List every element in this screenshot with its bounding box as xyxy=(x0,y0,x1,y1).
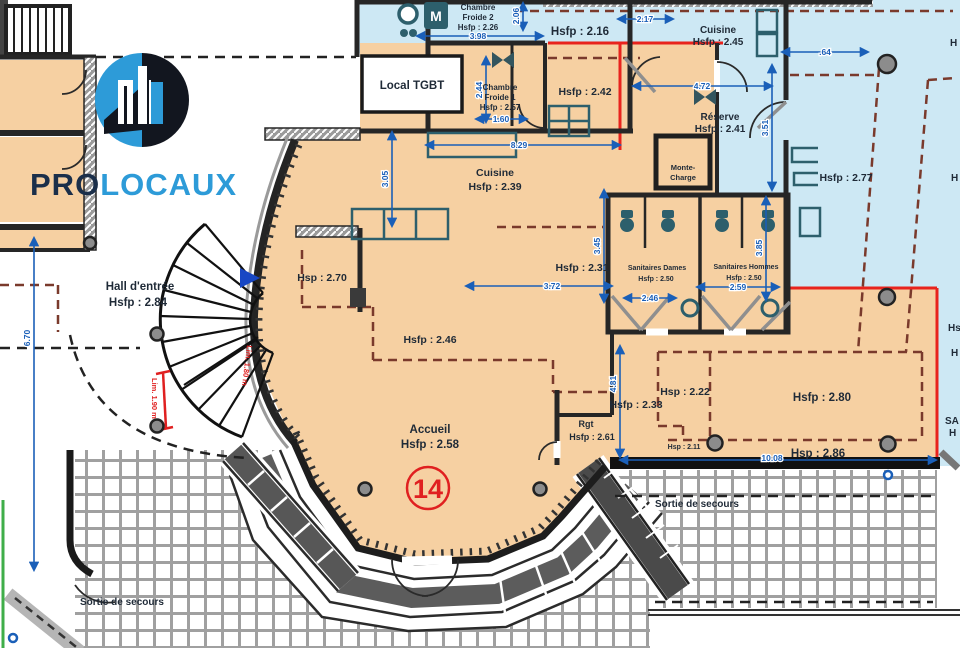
dim-385: 3.85 xyxy=(754,239,764,256)
svg-text:PROLOCAUX: PROLOCAUX xyxy=(30,167,237,202)
svg-text:Hsfp : 2.84: Hsfp : 2.84 xyxy=(109,297,168,309)
edge-fragment: H xyxy=(950,38,957,49)
stair-limit-label-left: Lim. 1.90 m xyxy=(150,378,159,419)
dim-472: 4.72 xyxy=(694,81,711,91)
room-sanitaires-hommes: Sanitaires Hommes xyxy=(714,264,779,271)
zone-222: Hsp : 2.22 xyxy=(660,386,710,398)
dim-372: 3.72 xyxy=(544,281,561,291)
svg-text:Froide 1: Froide 1 xyxy=(484,93,516,102)
zone-280: Hsfp : 2.80 xyxy=(793,392,851,404)
room-cuisine-45: Cuisine xyxy=(700,25,737,36)
dim-1008: 10.08 xyxy=(761,453,783,463)
edge-fragment: H xyxy=(951,348,958,359)
room-number-badge: 14 xyxy=(407,467,449,509)
edge-fragment: Hs xyxy=(948,323,960,334)
logo-text-pro: PRO xyxy=(30,167,100,202)
zone-277: Hsfp : 2.77 xyxy=(819,172,872,184)
svg-text:Hsfp : 2.50: Hsfp : 2.50 xyxy=(726,275,762,282)
room-rgt: Rgt xyxy=(579,419,594,429)
zone-270: Hsp : 2.70 xyxy=(297,272,347,284)
zone-211: Hsp : 2.11 xyxy=(668,444,701,451)
dim-345: 3.45 xyxy=(592,237,602,254)
dim-217: 2.17 xyxy=(637,14,654,24)
floor-plan-svg: M xyxy=(0,0,960,648)
zone-286: Hsp : 2.86 xyxy=(791,448,845,460)
room-sanitaires-dames: Sanitaires Dames xyxy=(628,265,686,272)
room-cuisine-39: Cuisine xyxy=(476,167,514,179)
svg-text:Hsfp : 2.61: Hsfp : 2.61 xyxy=(569,432,615,442)
room-local-tgbt: Local TGBT xyxy=(380,80,445,92)
exit-label-right: Sortie de secours xyxy=(655,499,739,510)
dim-829: 8.29 xyxy=(511,140,528,150)
dim-259: 2.59 xyxy=(730,282,747,292)
dim-481: 4.81 xyxy=(608,375,618,392)
dim-064: .64 xyxy=(819,47,831,57)
zone-231: Hsfp : 2.31 xyxy=(555,262,608,274)
zone-242: Hsfp : 2.42 xyxy=(558,86,611,98)
svg-text:Hsfp : 2.39: Hsfp : 2.39 xyxy=(468,181,521,193)
edge-fragment: H xyxy=(951,173,958,184)
svg-text:Charge: Charge xyxy=(670,173,696,182)
edge-fragment: H xyxy=(949,428,956,439)
dim-351: 3.51 xyxy=(760,119,770,136)
zone-216: Hsfp : 2.16 xyxy=(551,26,609,38)
svg-text:Hsfp : 2.45: Hsfp : 2.45 xyxy=(693,37,744,48)
room-cf2: Chambre xyxy=(461,3,496,12)
room-reserve: Réserve xyxy=(701,112,740,123)
svg-text:Hsfp : 2.26: Hsfp : 2.26 xyxy=(458,23,499,32)
edge-fragment: SA xyxy=(945,416,959,427)
zone-233: Hsfp : 2.33 xyxy=(609,399,662,411)
dim-305: 3.05 xyxy=(380,170,390,187)
floor-plan-canvas: M xyxy=(0,0,960,648)
logo-text-locaux: LOCAUX xyxy=(100,167,237,202)
room-number: 14 xyxy=(413,474,443,504)
svg-text:Hsfp : 2.41: Hsfp : 2.41 xyxy=(695,124,746,135)
dim-670: 6.70 xyxy=(22,329,32,346)
room-accueil: Accueil xyxy=(410,424,451,436)
dim-246: 2.46 xyxy=(642,293,659,303)
room-cf1: Chambre xyxy=(483,83,518,92)
svg-text:Hsfp : 2.58: Hsfp : 2.58 xyxy=(401,439,460,451)
svg-text:Hsfp : 2.57: Hsfp : 2.57 xyxy=(480,103,521,112)
dim-206: 2.06 xyxy=(511,7,521,24)
svg-text:Froide 2: Froide 2 xyxy=(462,13,494,22)
room-hall: Hall d'entrée xyxy=(106,281,175,293)
corner-ramp xyxy=(8,594,80,648)
svg-text:Hsfp : 2.50: Hsfp : 2.50 xyxy=(638,276,674,283)
dim-160: 1.60 xyxy=(493,114,510,124)
room-monte-charge: Monte- xyxy=(671,163,696,172)
m-unit-icon: M xyxy=(430,8,442,24)
dim-398: 3.98 xyxy=(470,31,487,41)
zone-246: Hsfp : 2.46 xyxy=(403,334,456,346)
exit-label-left: Sortie de secours xyxy=(80,597,164,608)
